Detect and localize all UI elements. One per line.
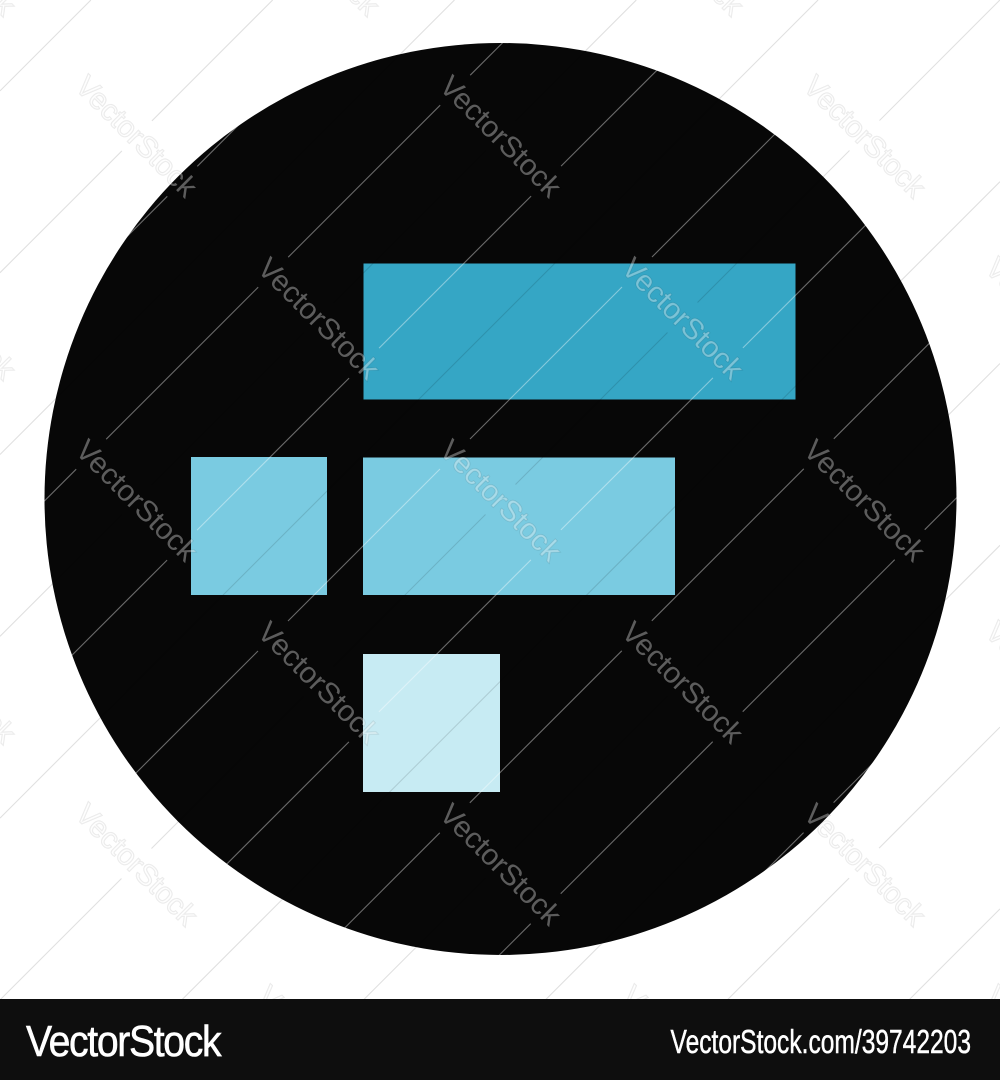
svg-text:VectorStock.com/39742203: VectorStock.com/39742203 (671, 1025, 971, 1061)
svg-text:VectorStock: VectorStock (26, 1016, 222, 1066)
